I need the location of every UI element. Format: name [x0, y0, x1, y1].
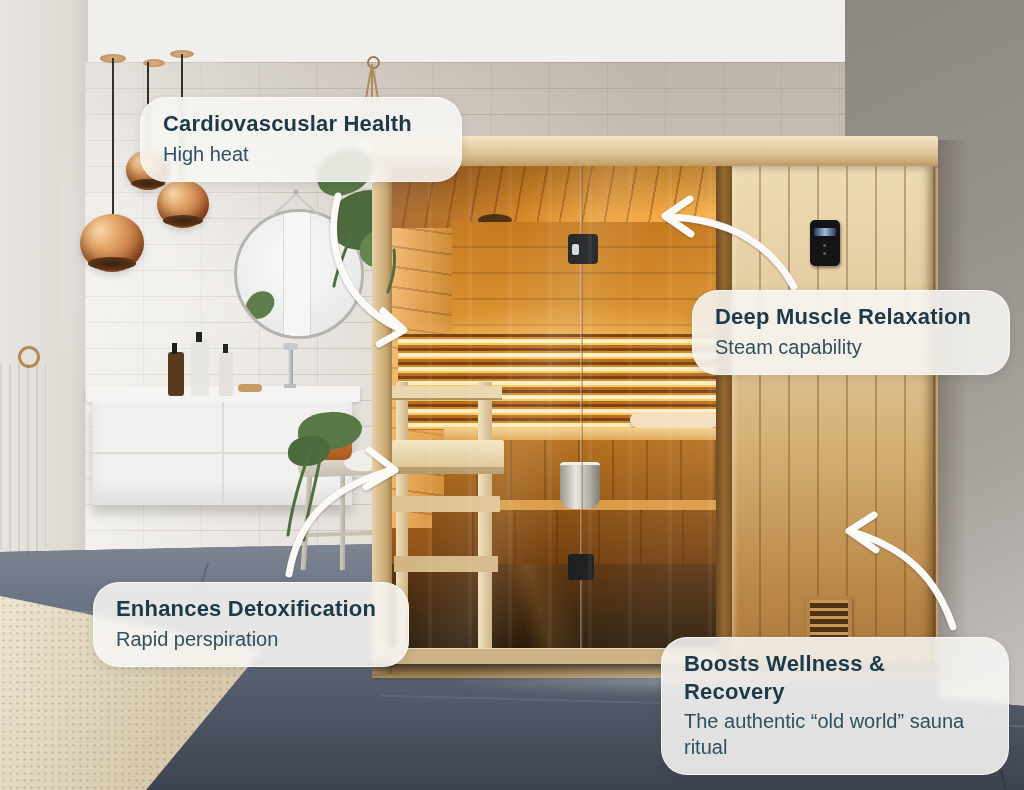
soap-pump [196, 332, 202, 342]
soap-bottle-small [219, 352, 233, 396]
soap-pump [223, 344, 228, 353]
control-display [814, 228, 836, 236]
callout-deep-muscle-relaxation: Deep Muscle Relaxation Steam capability [692, 290, 1010, 375]
faucet-base [284, 384, 296, 388]
callout-title: Enhances Detoxification [116, 595, 386, 623]
soap-pump [172, 343, 177, 354]
wooden-brush [238, 384, 262, 392]
faucet [287, 348, 293, 386]
callout-subtitle: The authentic “old world” sauna ritual [684, 708, 986, 760]
towel [0, 364, 46, 554]
wall-shadow [938, 140, 968, 680]
callout-cardiovascular-health: Cardiovascuslar Health High heat [140, 97, 462, 182]
vent-grille [806, 596, 852, 642]
callout-subtitle: Rapid perspiration [116, 626, 386, 652]
mirror-reflection [283, 212, 311, 336]
soap-bottle-frosted [191, 340, 209, 396]
callout-subtitle: Steam capability [715, 334, 987, 360]
callout-subtitle: High heat [163, 141, 439, 167]
faucet-spout [283, 343, 298, 350]
pendant-lamp [157, 180, 209, 228]
pendant-lamp [80, 214, 144, 272]
glass-reflection [392, 166, 718, 664]
pendant-cord [112, 58, 114, 218]
callout-enhances-detoxification: Enhances Detoxification Rapid perspirati… [93, 582, 409, 667]
annotated-sauna-photo: Cardiovascuslar Health High heat Deep Mu… [0, 0, 1024, 790]
callout-boosts-wellness-recovery: Boosts Wellness & Recovery The authentic… [661, 637, 1009, 775]
sauna-frame-divider [716, 166, 732, 674]
stool-leg [340, 476, 345, 570]
control-panel [810, 220, 840, 266]
callout-title: Boosts Wellness & Recovery [684, 650, 986, 705]
soap-bottle-amber [168, 352, 184, 396]
sauna-interior-window [392, 166, 718, 664]
callout-title: Deep Muscle Relaxation [715, 303, 987, 331]
callout-title: Cardiovascuslar Health [163, 110, 439, 138]
